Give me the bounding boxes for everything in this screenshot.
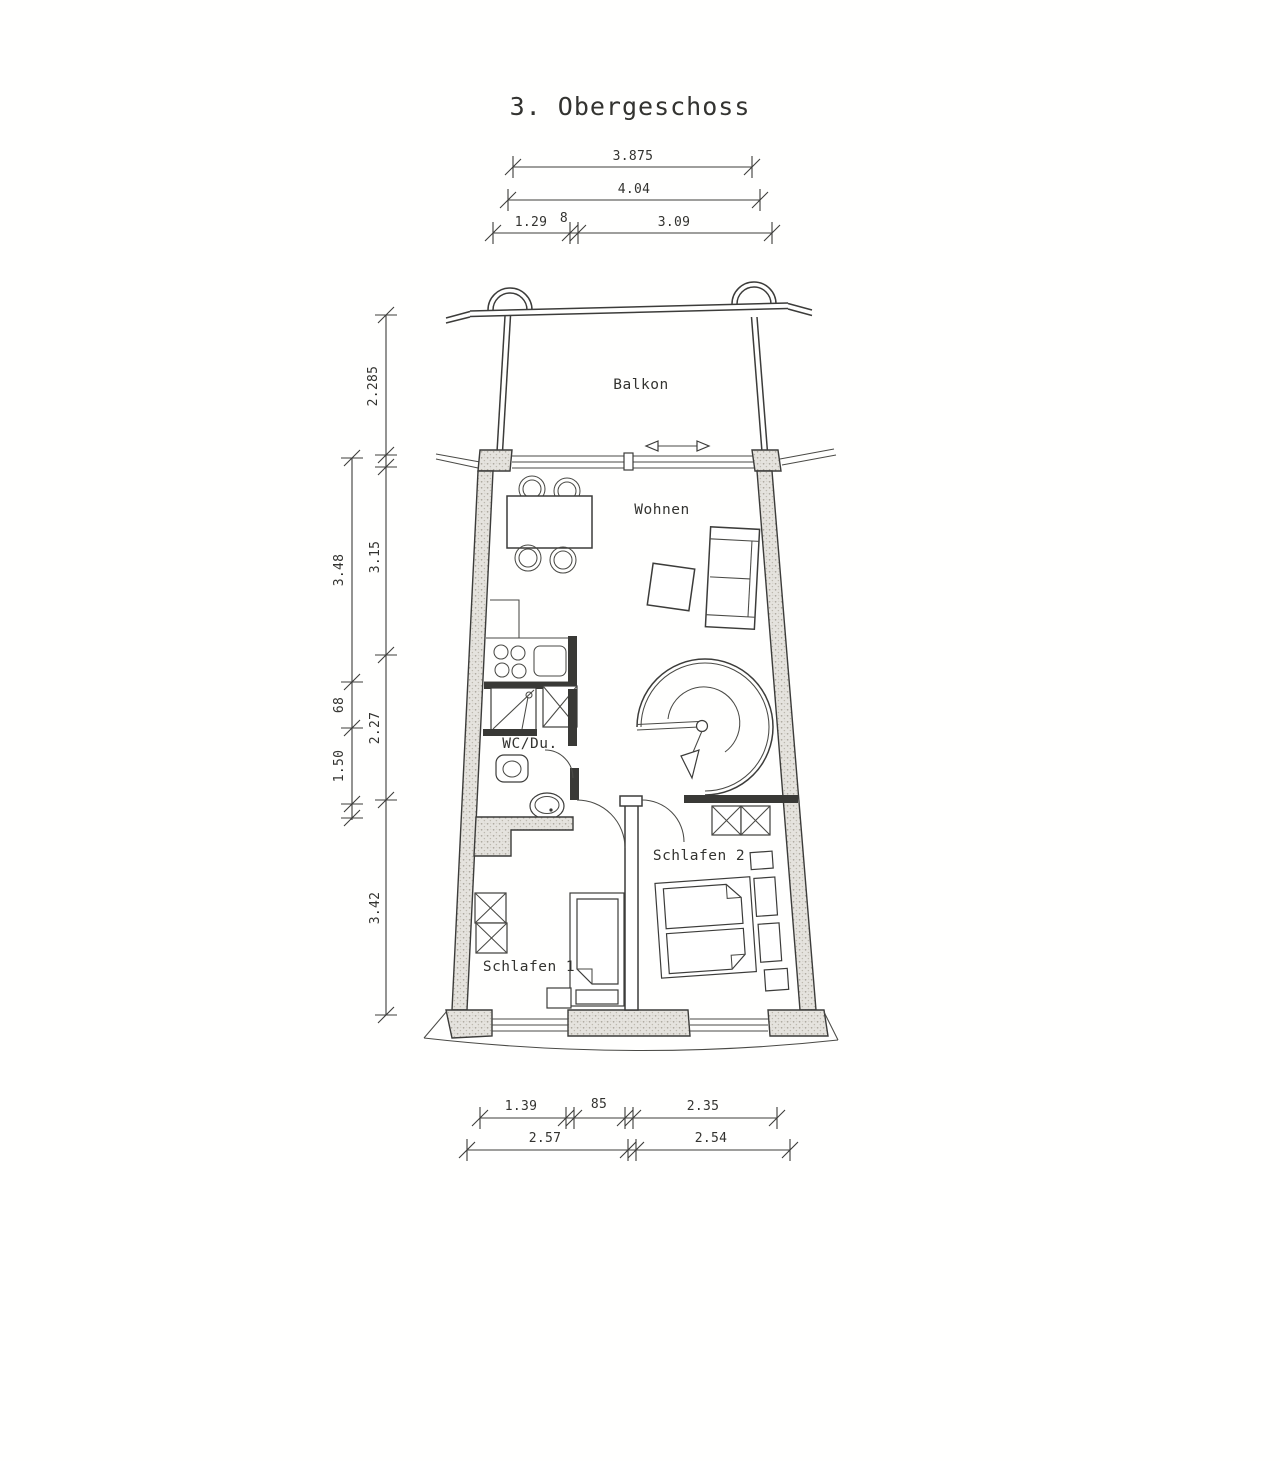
wall-pier: [752, 450, 781, 471]
bedroom-1: Schlafen 1: [475, 893, 624, 1008]
dim-label: 3.15: [368, 541, 383, 574]
sliding-door-arrow-icon: [646, 441, 709, 451]
dim-label: 3.09: [658, 215, 691, 230]
dim-left: 2.285 3.15 2.27 3.42 3.48 68 1.50: [332, 307, 397, 1023]
shower-icon: [491, 688, 536, 731]
single-bed: [570, 893, 624, 1006]
dim-label: 68: [332, 697, 347, 713]
dim-bottom: 1.39 85 2.35 2.57 2.54: [459, 1097, 798, 1161]
coffee-table: [647, 563, 694, 610]
sofa: [705, 527, 759, 629]
dim-label: 3.48: [332, 554, 347, 587]
sink-icon: [534, 646, 566, 676]
balcony-corner-arc: [732, 282, 776, 304]
door-swing-arc: [545, 750, 573, 778]
pillow: [754, 877, 778, 916]
balcony-corner-arc: [488, 288, 532, 310]
dim-top: 3.875 4.04 1.29 8 3.09: [485, 149, 780, 244]
dining-table: [507, 496, 592, 548]
dim-label: 2.54: [695, 1131, 728, 1146]
page-title: 3. Obergeschoss: [510, 92, 751, 121]
dim-label: 3.42: [368, 892, 383, 925]
dim-label: 1.39: [505, 1099, 538, 1114]
wc-east-wall-lower: [570, 768, 579, 800]
nightstand: [547, 988, 571, 1008]
balcony: Balkon: [446, 282, 812, 452]
room-label-schlafen1: Schlafen 1: [483, 959, 575, 975]
living-room-furniture: Wohnen: [507, 476, 760, 629]
room-label-wc: WC/Du.: [502, 736, 557, 752]
room-label-wohnen: Wohnen: [634, 502, 689, 518]
room-label-balkon: Balkon: [613, 377, 668, 393]
shower-wall-stub: [483, 729, 537, 736]
bedroom2-north-wall: [684, 795, 798, 803]
washbasin-icon: [530, 793, 564, 819]
bathroom: WC/Du.: [474, 686, 579, 856]
stove-icon: [494, 645, 526, 678]
chair-icon: [515, 545, 576, 573]
window-wall: [436, 441, 836, 471]
nightstand: [764, 968, 788, 991]
wall-pier: [446, 1010, 492, 1038]
wall-pier: [478, 450, 512, 471]
wc-east-wall-upper: [568, 689, 577, 746]
wall-pier: [768, 1010, 828, 1036]
shaft-icon: [712, 806, 770, 835]
dim-label: 1.29: [515, 215, 548, 230]
dim-label: 2.35: [687, 1099, 720, 1114]
dim-label: 8: [560, 211, 568, 226]
shaft-icon: [475, 893, 507, 953]
bedroom-divider-wall: [625, 798, 638, 1010]
pillow: [576, 990, 618, 1004]
dim-label: 2.27: [368, 712, 383, 745]
dim-label: 3.875: [613, 149, 654, 164]
dim-label: 2.285: [366, 366, 381, 407]
door-swing-arc: [577, 800, 625, 848]
bedroom-2: Schlafen 2: [653, 806, 789, 998]
dim-label: 85: [591, 1097, 607, 1112]
wall-pier: [568, 1010, 690, 1036]
kitchen: [484, 600, 577, 689]
spiral-staircase: [637, 659, 773, 795]
door-swing-arc: [642, 800, 684, 842]
dim-label: 4.04: [618, 182, 651, 197]
floor-plan-page: 3. Obergeschoss 3.875 4.04 1.29 8 3.09 2…: [0, 0, 1280, 1461]
room-label-schlafen2: Schlafen 2: [653, 848, 745, 864]
window-mullion: [624, 453, 633, 470]
kitchen-wall-stub: [568, 636, 577, 684]
facade-curve: [424, 1038, 838, 1051]
floor-plan-drawing: 3. Obergeschoss 3.875 4.04 1.29 8 3.09 2…: [0, 0, 1280, 1461]
toilet-icon: [496, 755, 528, 782]
nightstand: [750, 851, 773, 869]
wall-endcap: [620, 796, 642, 806]
dim-label: 2.57: [529, 1131, 562, 1146]
pillow: [758, 923, 782, 962]
wc-south-wall: [474, 817, 573, 856]
double-bed: [653, 851, 788, 998]
dim-label: 1.50: [332, 750, 347, 783]
stair-arrow-icon: [681, 731, 702, 778]
